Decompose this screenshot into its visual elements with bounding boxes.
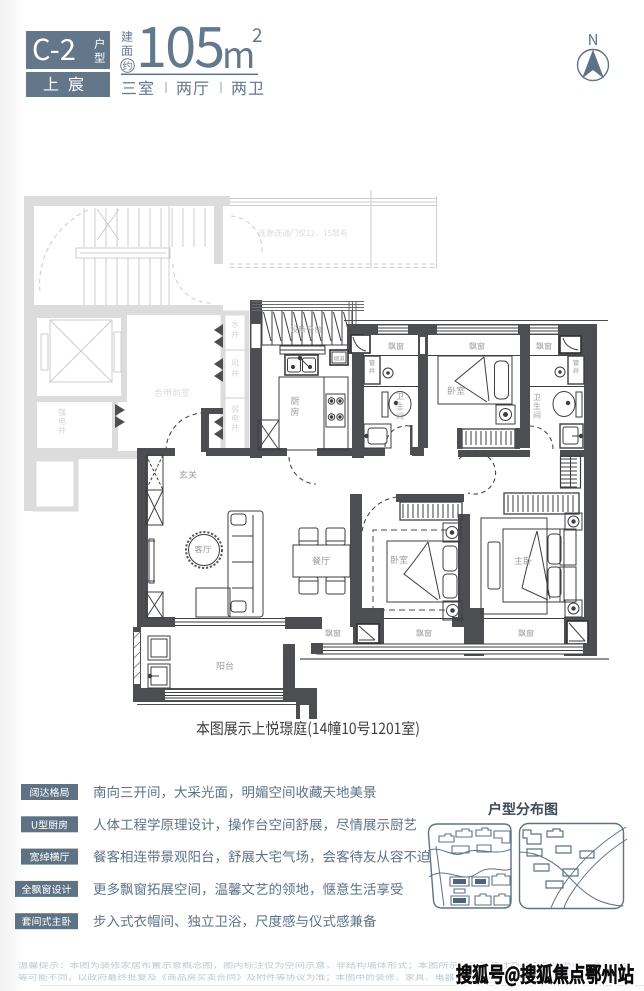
svg-text:阔达格局: 阔达格局	[30, 784, 70, 799]
svg-text:m: m	[222, 27, 255, 79]
svg-text:飘窗: 飘窗	[416, 628, 432, 639]
svg-text:井: 井	[58, 425, 66, 436]
svg-text:飘窗: 飘窗	[388, 341, 404, 352]
svg-text:本图展示上悦璟庭(14幢10号1201室): 本图展示上悦璟庭(14幢10号1201室)	[196, 717, 420, 739]
svg-text:餐客相连带景观阳台，舒展大宅气场，会客待友从容不迫: 餐客相连带景观阳台，舒展大宅气场，会客待友从容不迫	[93, 846, 431, 866]
svg-text:阳台: 阳台	[216, 659, 234, 672]
svg-text:飘窗: 飘窗	[325, 628, 341, 639]
svg-text:井: 井	[231, 422, 239, 433]
svg-text:丨: 丨	[215, 79, 227, 96]
svg-text:C-2: C-2	[32, 27, 76, 69]
svg-text:2: 2	[252, 21, 263, 48]
svg-text:卧室: 卧室	[390, 553, 408, 566]
svg-text:飘窗: 飘窗	[536, 341, 552, 352]
svg-text:卧室: 卧室	[447, 384, 465, 397]
svg-text:型: 型	[94, 50, 106, 66]
svg-text:丨: 丨	[160, 79, 172, 96]
svg-text:烟道: 烟道	[333, 355, 345, 363]
svg-text:设备平台: 设备平台	[290, 324, 322, 335]
svg-text:玄关: 玄关	[179, 468, 197, 481]
svg-text:间: 间	[396, 411, 404, 422]
svg-text:105: 105	[136, 3, 223, 84]
svg-text:房: 房	[290, 405, 299, 418]
svg-text:两卫: 两卫	[231, 75, 265, 99]
svg-text:客厅: 客厅	[194, 544, 212, 556]
svg-text:约: 约	[123, 58, 133, 73]
svg-text:搜狐号@搜狐焦点鄂州站: 搜狐号@搜狐焦点鄂州站	[456, 959, 634, 989]
svg-text:N: N	[588, 29, 599, 50]
svg-text:三室: 三室	[121, 75, 155, 99]
svg-text:飘窗: 飘窗	[469, 341, 485, 352]
svg-text:步入式衣帽间、独立卫浴，尺度感与仪式感兼备: 步入式衣帽间、独立卫浴，尺度感与仪式感兼备	[93, 910, 377, 930]
svg-text:两厅: 两厅	[176, 75, 210, 99]
svg-text:户型分布图: 户型分布图	[488, 799, 558, 819]
svg-text:全飘窗设计: 全飘窗设计	[22, 881, 72, 896]
svg-text:主卧: 主卧	[514, 554, 532, 567]
svg-text:餐厅: 餐厅	[312, 554, 330, 567]
svg-text:井: 井	[369, 365, 376, 375]
svg-text:面: 面	[121, 42, 133, 59]
svg-text:合用前室: 合用前室	[154, 386, 190, 399]
svg-text:U型厨房: U型厨房	[31, 816, 68, 831]
svg-text:井: 井	[231, 329, 239, 340]
svg-text:井: 井	[231, 368, 239, 379]
svg-text:间: 间	[533, 410, 541, 421]
svg-text:飘窗: 飘窗	[518, 628, 534, 639]
svg-text:井: 井	[573, 365, 580, 375]
svg-text:人体工程学原理设计，操作台空间舒展，尽情展示厨艺: 人体工程学原理设计，操作台空间舒展，尽情展示厨艺	[93, 813, 417, 833]
svg-text:南向三开间，大采光面，明媚空间收藏天地美景: 南向三开间，大采光面，明媚空间收藏天地美景	[93, 781, 377, 801]
svg-text:更多飘窗拓展空间，温馨文艺的领地，惬意生活享受: 更多飘窗拓展空间，温馨文艺的领地，惬意生活享受	[93, 878, 404, 898]
svg-text:宽绰横厅: 宽绰横厅	[30, 849, 70, 864]
svg-text:套间式主卧: 套间式主卧	[22, 913, 72, 928]
svg-text:上宸: 上宸	[43, 71, 93, 95]
svg-text:连廊连通门仅12、15层有: 连廊连通门仅12、15层有	[258, 228, 348, 239]
